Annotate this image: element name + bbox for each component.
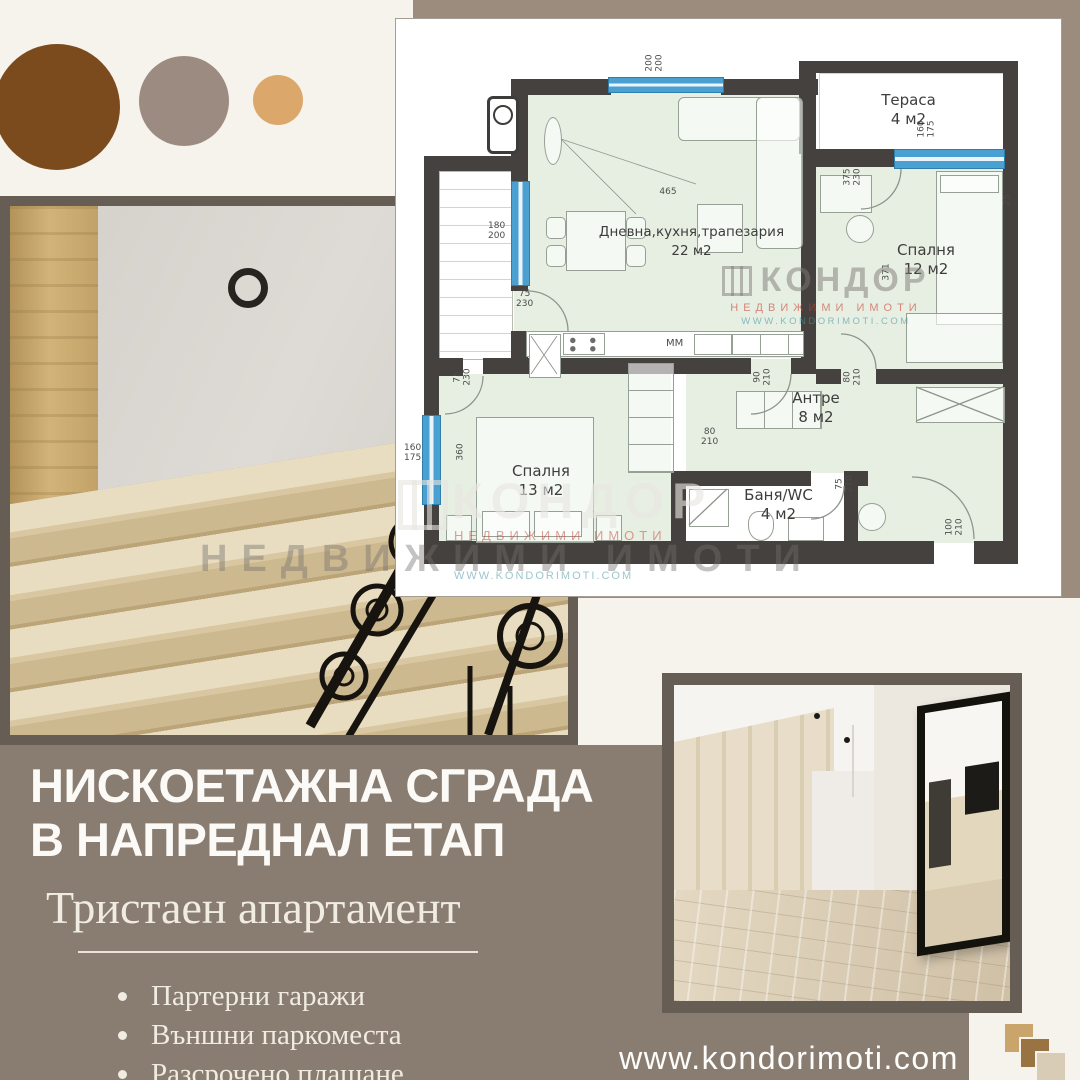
dimension-label: 80210 — [701, 427, 718, 447]
headline-line1: НИСКОЕТАЖНА СГРАДА — [30, 759, 593, 813]
dimension-label: 75210 — [835, 475, 855, 492]
appliance-label-mm: MM — [666, 339, 683, 349]
list-item: Външни паркоместа — [118, 1016, 404, 1055]
bullet-dot-icon — [118, 1070, 127, 1079]
pendant-wire — [852, 725, 854, 797]
bullet-dot-icon — [118, 1031, 127, 1040]
interior-photo-frame — [662, 673, 1022, 1013]
dimension-label: 80210 — [843, 368, 863, 385]
interior-photo — [674, 685, 1010, 1001]
poster-canvas: Тераса4 м2 Дневна,кухня,трапезария22 м2 … — [0, 0, 1080, 1080]
subtitle: Тристаен апартамент — [46, 881, 461, 934]
ceiling-spot — [844, 737, 850, 743]
room-label-bath: Баня/WC4 м2 — [706, 486, 851, 524]
dimension-label: 100210 — [945, 518, 965, 535]
bullet-dot-icon — [118, 992, 127, 1001]
dimension-label: 90210 — [753, 368, 773, 385]
dimension-label: 180200 — [488, 221, 505, 241]
headline-line2: В НАПРЕДНАЛ ЕТАП — [30, 813, 505, 867]
mirror — [917, 692, 1010, 957]
bullet-text: Партерни гаражи — [151, 977, 365, 1016]
room-label-hall: Антре8 м2 — [751, 389, 881, 427]
list-item: Разсрочено плащане — [118, 1055, 404, 1080]
dimension-label: 200200 — [645, 54, 665, 71]
room-label-bedroom13: Спалня13 м2 — [476, 462, 606, 500]
decor-circle-brown — [0, 44, 120, 170]
divider-line — [78, 951, 478, 953]
logo-square-beige — [1035, 1051, 1067, 1080]
decor-circle-taupe — [139, 56, 229, 146]
ceiling-spot — [814, 713, 820, 719]
decor-circle-tan — [253, 75, 303, 125]
dimension-label: 160175 — [917, 120, 937, 137]
room-label-terrace: Тераса4 м2 — [816, 91, 1001, 129]
website-url[interactable]: www.kondorimoti.com — [599, 1040, 979, 1077]
list-item: Партерни гаражи — [118, 977, 404, 1016]
dimension-label: 360 — [456, 443, 466, 460]
mirror-tv — [965, 761, 999, 814]
bullet-text: Външни паркоместа — [151, 1016, 402, 1055]
room-label-bedroom12: Спалня12 м2 — [861, 241, 991, 279]
dimension-label: 371 — [882, 263, 892, 280]
dimension-label: 160175 — [404, 443, 421, 463]
dimension-label: 465 — [646, 187, 690, 197]
mirror-doorway — [929, 779, 951, 868]
back-wall — [812, 771, 882, 901]
mirror-reflection — [925, 701, 1002, 947]
dimension-label: 375230 — [843, 168, 863, 185]
dimension-label: 25 — [1003, 194, 1013, 205]
room-label-living: Дневна,кухня,трапезария22 м2 — [584, 223, 799, 261]
floorplan-card: Тераса4 м2 Дневна,кухня,трапезария22 м2 … — [395, 18, 1062, 597]
bullet-text: Разсрочено плащане — [151, 1055, 404, 1080]
dimension-label: 75230 — [453, 368, 473, 385]
feature-list: Партерни гаражи Външни паркоместа Разсро… — [118, 977, 404, 1080]
dimension-label: 75230 — [516, 289, 533, 309]
